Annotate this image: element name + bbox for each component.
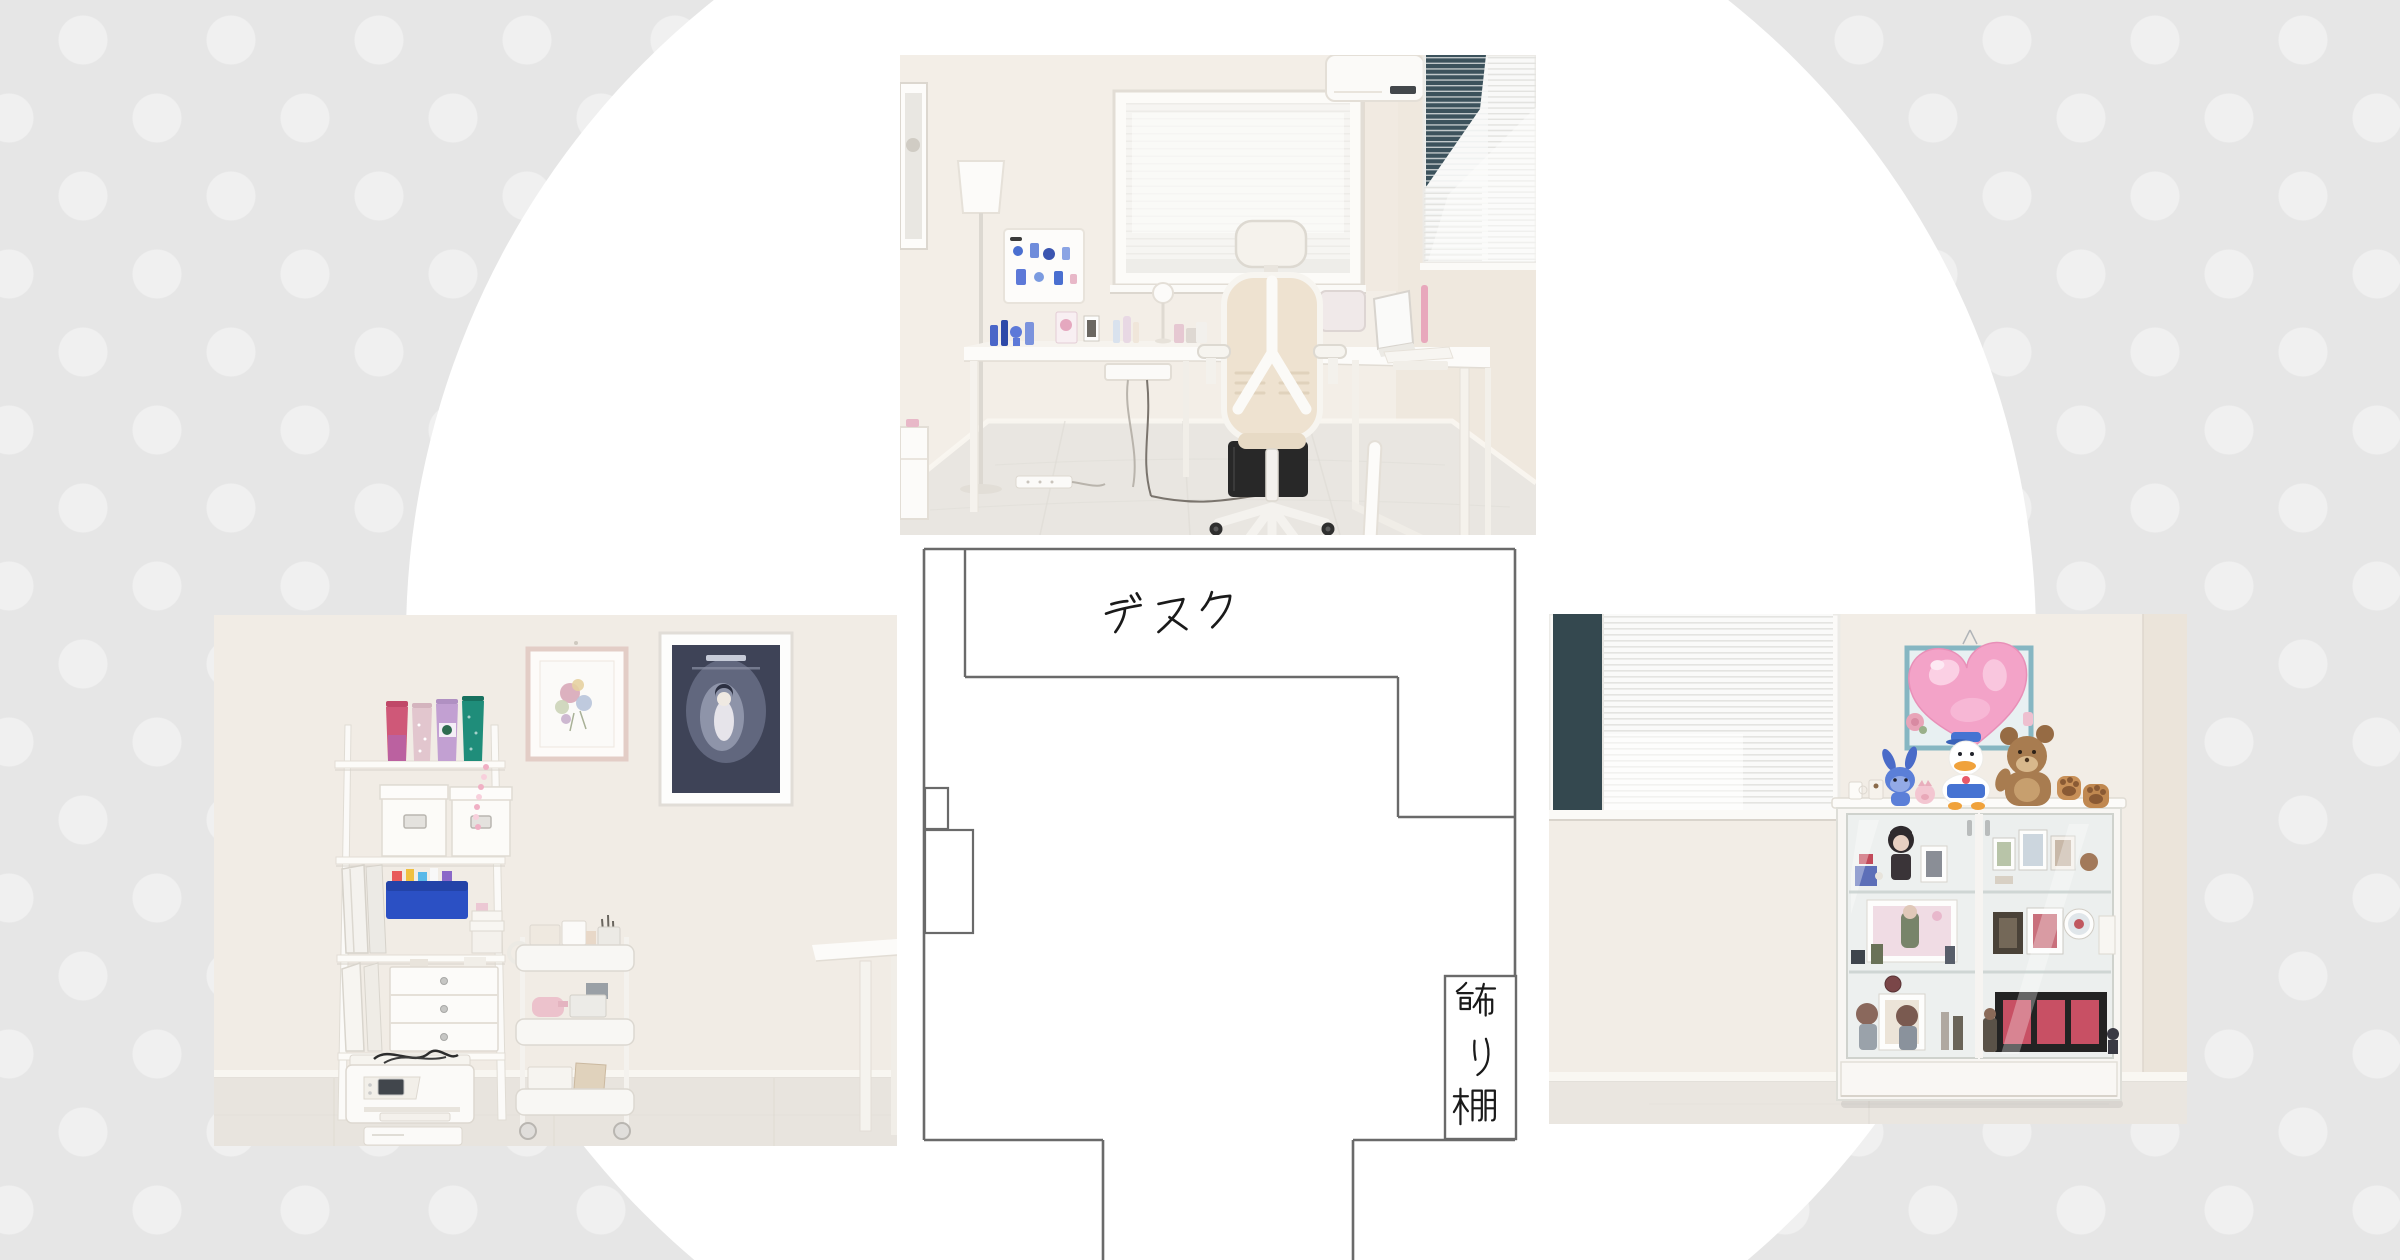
photo-desk-room (900, 55, 1536, 535)
cart-bottom-items (528, 1063, 606, 1089)
photo-display-cabinet (1549, 614, 2187, 1124)
window-with-blinds (1549, 614, 1843, 820)
pegboard (1004, 229, 1084, 303)
floor-plan-desk-outline (965, 549, 1515, 817)
floor-plan-wall-boxes (925, 788, 973, 933)
room-floor (900, 421, 1536, 535)
photo-shelf-area (214, 615, 897, 1146)
back-window-shade (1110, 91, 1366, 293)
display-cabinet (1832, 798, 2126, 1108)
kana-su (1156, 599, 1186, 632)
floor-plan: デスク 飾り棚 (900, 530, 1540, 1260)
floral-frame (528, 641, 626, 759)
printer (346, 1051, 474, 1145)
air-conditioner (1326, 55, 1424, 101)
poster-frame (660, 633, 792, 805)
kana-ku (1201, 591, 1232, 628)
collage-canvas: デスク 飾り棚 (0, 0, 2400, 1260)
wall-poster-frame (900, 83, 927, 249)
right-window-blinds (1420, 55, 1536, 270)
left-low-cabinet (900, 419, 928, 519)
floor-plan-walls (924, 549, 1515, 1260)
cabinet-contents-left (1851, 826, 1963, 1050)
desk-label-handwritten (1105, 587, 1232, 636)
rolling-cart (509, 915, 634, 1139)
kana-de (1105, 593, 1142, 632)
